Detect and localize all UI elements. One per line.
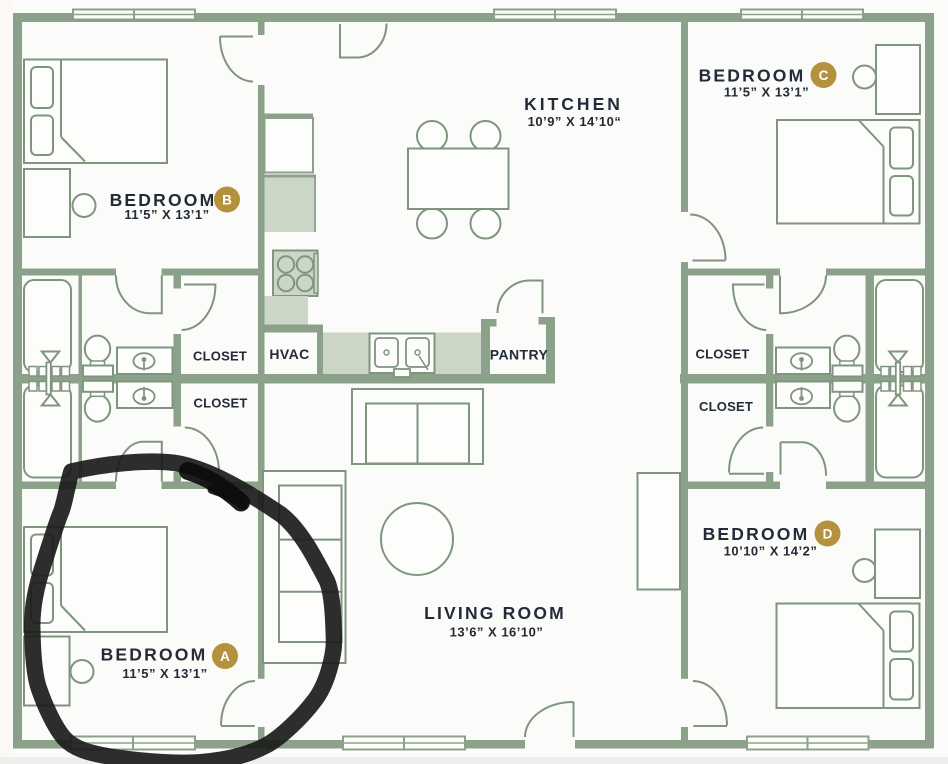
svg-text:10’9” X 14’10“: 10’9” X 14’10“ xyxy=(528,114,622,129)
svg-text:BEDROOM: BEDROOM xyxy=(699,66,806,86)
svg-text:CLOSET: CLOSET xyxy=(193,349,247,364)
svg-text:BEDROOM: BEDROOM xyxy=(703,524,810,544)
svg-text:B: B xyxy=(222,193,232,208)
svg-text:11’5” X 13’1”: 11’5” X 13’1” xyxy=(124,207,209,222)
svg-text:CLOSET: CLOSET xyxy=(699,399,753,414)
svg-text:PANTRY: PANTRY xyxy=(490,347,549,363)
svg-text:BEDROOM: BEDROOM xyxy=(101,645,208,665)
svg-text:D: D xyxy=(823,527,833,542)
svg-text:C: C xyxy=(819,68,829,83)
svg-text:13’6” X 16’10”: 13’6” X 16’10” xyxy=(450,625,544,640)
svg-text:11’5” X 13’1”: 11’5” X 13’1” xyxy=(122,666,207,681)
svg-text:LIVING ROOM: LIVING ROOM xyxy=(424,603,566,623)
svg-text:KITCHEN: KITCHEN xyxy=(524,94,623,114)
svg-text:A: A xyxy=(220,649,230,664)
svg-text:10’10” X 14’2”: 10’10” X 14’2” xyxy=(724,544,818,559)
svg-text:11’5” X 13’1”: 11’5” X 13’1” xyxy=(724,85,809,100)
svg-text:CLOSET: CLOSET xyxy=(194,396,248,411)
svg-text:HVAC: HVAC xyxy=(269,346,309,362)
svg-text:CLOSET: CLOSET xyxy=(696,347,750,362)
